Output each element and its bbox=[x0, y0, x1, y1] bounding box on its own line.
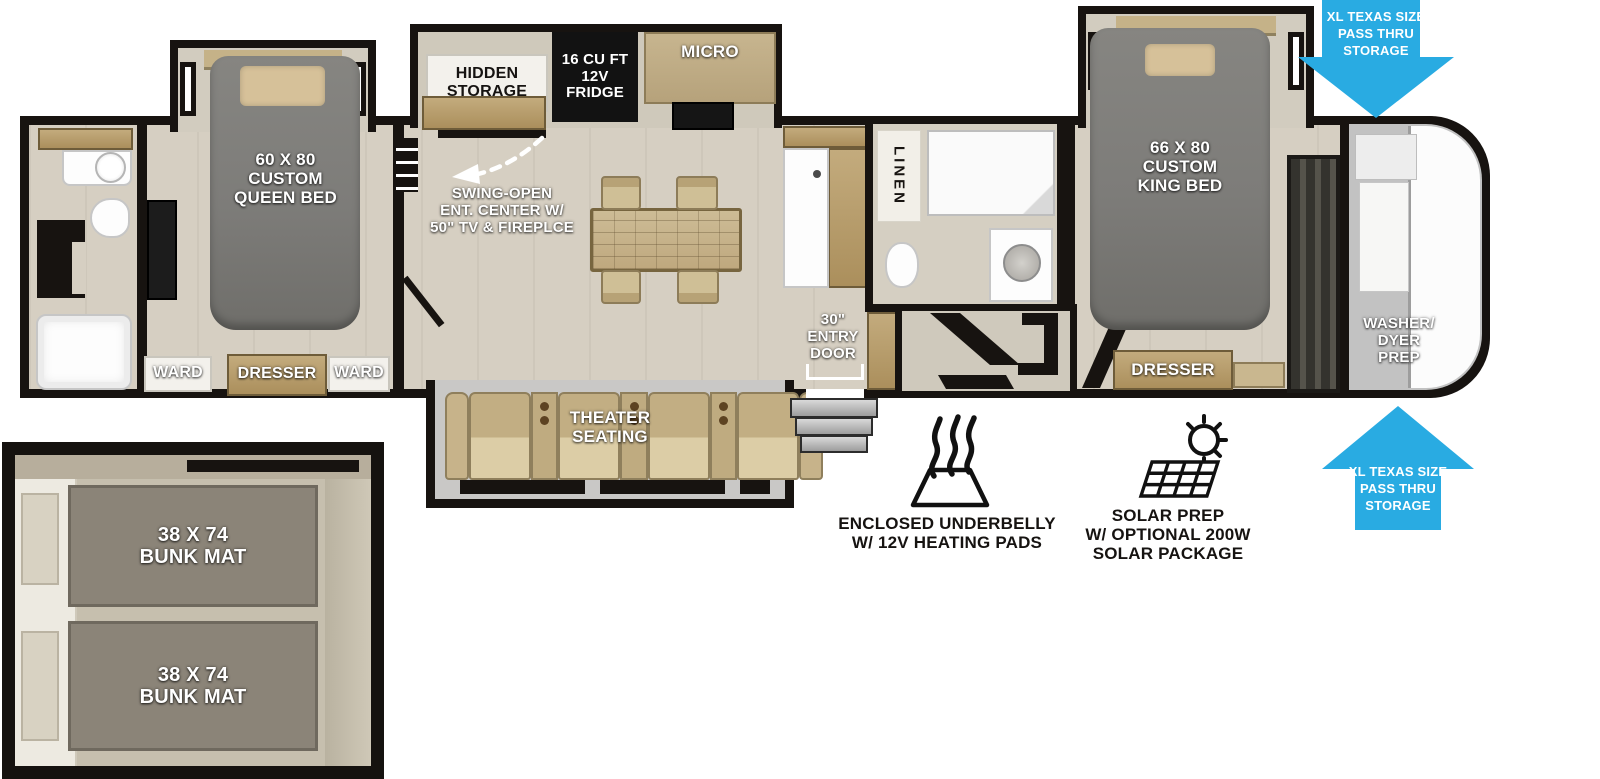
queen-window-left-icon bbox=[180, 62, 196, 116]
door-icon bbox=[396, 138, 418, 192]
cap-cabinet bbox=[1355, 134, 1417, 180]
washer-dryer-prep-label: WASHER/ DYER PREP bbox=[1351, 316, 1447, 366]
micro-label: MICRO bbox=[646, 42, 774, 61]
underbelly-label: ENCLOSED UNDERBELLY W/ 12V HEATING PADS bbox=[827, 514, 1067, 552]
wall-bath-bedroom bbox=[137, 125, 147, 389]
front-cap: WASHER/ DYER PREP bbox=[1349, 116, 1490, 398]
floor-mat bbox=[740, 480, 770, 494]
bedside-cabinet bbox=[1233, 362, 1285, 388]
bunk-mat-top: 38 X 74 BUNK MAT bbox=[68, 485, 318, 607]
king-dresser-label: DRESSER bbox=[1113, 360, 1233, 379]
queen-bed-label: 60 X 80 CUSTOM QUEEN BED bbox=[213, 150, 358, 207]
theater-seating-label: THEATER SEATING bbox=[435, 408, 785, 446]
king-pillow bbox=[1145, 44, 1215, 76]
queen-dresser-label: DRESSER bbox=[227, 365, 327, 383]
heating-pads-icon bbox=[902, 412, 998, 510]
bunk-room-floor: 38 X 74 BUNK MAT 38 X 74 BUNK MAT bbox=[15, 455, 371, 766]
kitchen-sink-counter bbox=[783, 148, 829, 288]
dining-chair bbox=[677, 270, 719, 304]
faucet-icon bbox=[813, 170, 821, 178]
wall-living-frontbedroom bbox=[1065, 116, 1075, 312]
entry-steps bbox=[790, 398, 882, 456]
entry-step bbox=[795, 417, 873, 436]
toilet-icon bbox=[885, 242, 919, 288]
microwave-counter: MICRO bbox=[644, 32, 776, 104]
solar-panel-sun-icon bbox=[1126, 414, 1230, 506]
entertainment-center bbox=[422, 96, 546, 130]
king-bed-label: 66 X 80 CUSTOM KING BED bbox=[1090, 138, 1270, 195]
bunk-window-slot-icon bbox=[187, 460, 359, 472]
cooktop-icon bbox=[672, 102, 734, 130]
bunk-mat-bottom-label: 38 X 74 BUNK MAT bbox=[140, 664, 247, 709]
pass-thru-bottom-label: XL TEXAS SIZE PASS THRU STORAGE bbox=[1322, 406, 1474, 515]
shower-icon bbox=[927, 130, 1055, 216]
kitchen-island bbox=[590, 208, 742, 272]
entry-door-label: 30" ENTRY DOOR bbox=[798, 312, 868, 362]
sink-bowl-icon bbox=[1003, 244, 1041, 282]
bunk-mat-top-label: 38 X 74 BUNK MAT bbox=[140, 524, 247, 569]
bunk-wardrobe-door bbox=[21, 493, 59, 585]
linen-closet: LINEN bbox=[877, 130, 921, 222]
stair-room bbox=[895, 304, 1077, 398]
entry-door-gap bbox=[806, 389, 864, 398]
dining-chair bbox=[676, 176, 718, 210]
pass-thru-arrow-up-icon: XL TEXAS SIZE PASS THRU STORAGE bbox=[1322, 406, 1474, 530]
bath-door-gap bbox=[72, 242, 86, 294]
bunk-wardrobe-door bbox=[21, 631, 59, 741]
bath-cabinet bbox=[38, 128, 133, 150]
stairs-icon bbox=[902, 311, 1070, 391]
swing-open-arrow-icon bbox=[448, 132, 546, 188]
refrigerator: 16 CU FT 12V FRIDGE bbox=[552, 32, 638, 122]
bedroom-tv-cabinet bbox=[147, 200, 177, 300]
dining-chair bbox=[601, 270, 641, 304]
fridge-label: 16 CU FT 12V FRIDGE bbox=[562, 52, 629, 102]
ward-right-label: WARD bbox=[328, 364, 390, 382]
pass-thru-top-label: XL TEXAS SIZE PASS THRU STORAGE bbox=[1298, 0, 1454, 60]
cap-cabinet bbox=[1359, 182, 1409, 292]
entry-door-bracket-icon bbox=[806, 364, 864, 380]
king-window-right-icon bbox=[1288, 32, 1304, 90]
ward-left-label: WARD bbox=[144, 364, 212, 382]
floor-mat bbox=[460, 480, 585, 494]
toilet-icon bbox=[90, 198, 130, 238]
entertainment-note-label: SWING-OPEN ENT. CENTER W/ 50" TV & FIREP… bbox=[413, 186, 591, 236]
bunk-room-inset: 38 X 74 BUNK MAT 38 X 74 BUNK MAT bbox=[2, 442, 384, 779]
dining-chair bbox=[601, 176, 641, 210]
theater-seating-slideout: THEATER SEATING bbox=[426, 380, 794, 508]
bunk-right-wall bbox=[325, 479, 371, 766]
entry-step bbox=[790, 398, 878, 418]
bunk-mat-bottom: 38 X 74 BUNK MAT bbox=[68, 621, 318, 751]
queen-pillow bbox=[240, 66, 325, 106]
bathtub-icon bbox=[36, 314, 132, 390]
solar-prep-label: SOLAR PREP W/ OPTIONAL 200W SOLAR PACKAG… bbox=[1058, 506, 1278, 563]
sink-bowl-icon bbox=[95, 152, 126, 183]
linen-label: LINEN bbox=[891, 146, 908, 206]
floor-mat bbox=[600, 480, 725, 494]
floorplan-canvas: HIDDEN STORAGE 16 CU FT 12V FRIDGE MICRO bbox=[0, 0, 1600, 779]
pass-thru-arrow-down-icon: XL TEXAS SIZE PASS THRU STORAGE bbox=[1298, 0, 1454, 118]
wardrobe-closet bbox=[1287, 155, 1340, 393]
entry-step bbox=[800, 435, 868, 453]
mid-bathroom: LINEN bbox=[865, 116, 1065, 312]
